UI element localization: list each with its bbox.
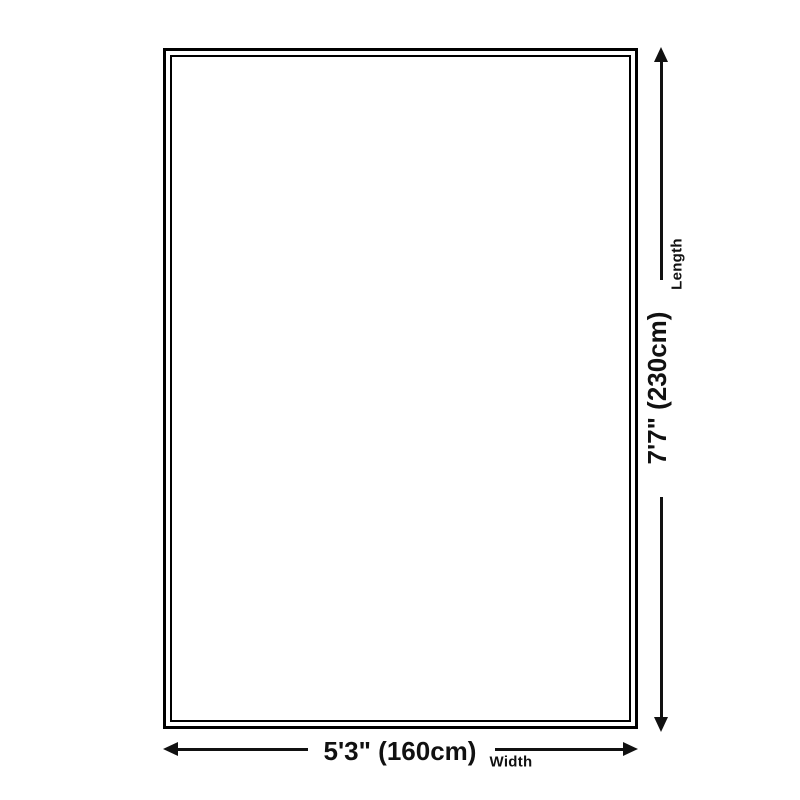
length-axis-label: Length — [670, 238, 685, 290]
rug-outline — [163, 48, 638, 729]
length-dimension-line-bottom — [660, 497, 663, 717]
width-dimension-value: 5'3" (160cm) — [324, 738, 477, 764]
width-dimension-line-right — [495, 748, 623, 751]
length-dimension-value: 7'7" (230cm) — [644, 312, 670, 465]
rug-size-diagram: Length 7'7" (230cm) 5'3" (160cm) Width — [0, 0, 800, 800]
length-dimension-line-top — [660, 60, 663, 280]
width-dimension-line-left — [176, 748, 308, 751]
rug-inner-border — [170, 55, 631, 722]
arrow-down-icon — [654, 717, 668, 732]
width-axis-label: Width — [489, 755, 532, 770]
arrow-right-icon — [623, 742, 638, 756]
